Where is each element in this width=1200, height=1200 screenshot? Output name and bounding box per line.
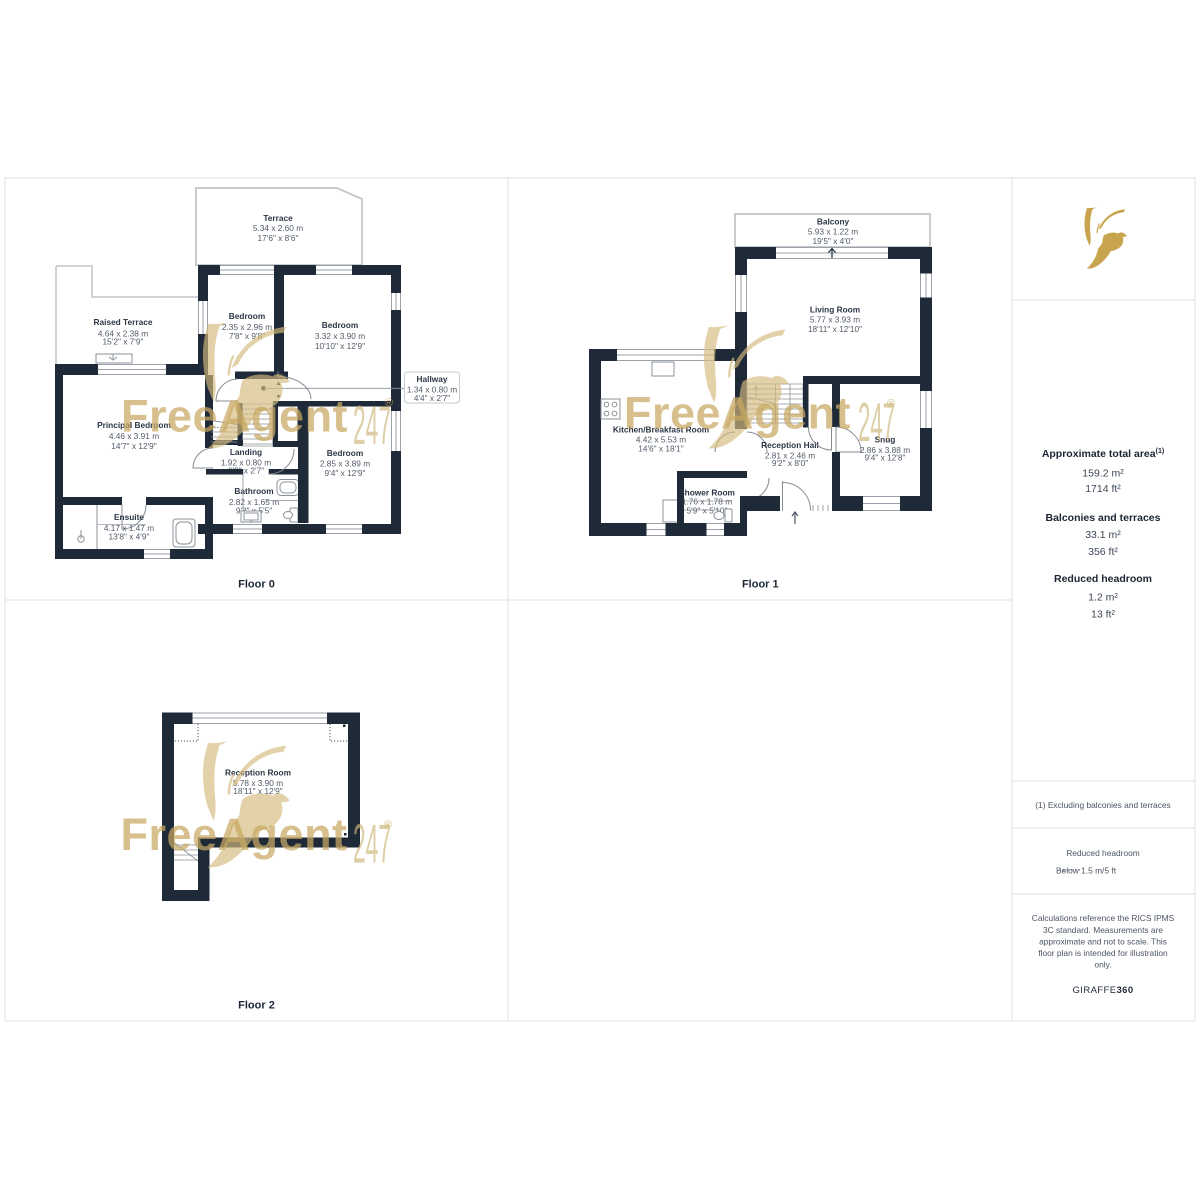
svg-text:Bedroom: Bedroom [229, 311, 265, 321]
svg-text:Hallway: Hallway [417, 374, 448, 384]
svg-text:19'5" x 4'0": 19'5" x 4'0" [813, 236, 854, 246]
svg-text:Approximate total area(1): Approximate total area(1) [1042, 448, 1164, 460]
svg-text:Living Room: Living Room [810, 304, 860, 314]
svg-text:3.32 x 3.90 m: 3.32 x 3.90 m [315, 331, 365, 341]
svg-text:18'11" x 12'10": 18'11" x 12'10" [808, 324, 862, 334]
svg-text:9'4" x 12'8": 9'4" x 12'8" [865, 453, 906, 463]
svg-text:®: ® [384, 819, 392, 831]
svg-text:10'10" x 12'9": 10'10" x 12'9" [315, 341, 365, 351]
svg-text:Bedroom: Bedroom [322, 320, 358, 330]
svg-text:FreeAgent: FreeAgent [121, 809, 348, 860]
svg-text:Ensuite: Ensuite [114, 512, 144, 522]
svg-text:Floor 2: Floor 2 [238, 999, 275, 1011]
svg-text:FreeAgent: FreeAgent [121, 391, 348, 442]
svg-text:Reduced headroom: Reduced headroom [1066, 848, 1140, 858]
svg-text:®: ® [385, 397, 393, 409]
svg-text:15'2" x 7'9": 15'2" x 7'9" [103, 337, 144, 347]
svg-text:5.34 x 2.60 m: 5.34 x 2.60 m [253, 223, 303, 233]
svg-text:Terrace: Terrace [263, 213, 293, 223]
svg-text:5.93 x 1.22 m: 5.93 x 1.22 m [808, 227, 858, 237]
svg-text:Balcony: Balcony [817, 217, 850, 227]
svg-text:Floor 0: Floor 0 [238, 578, 275, 590]
svg-text:33.1 m²: 33.1 m² [1085, 529, 1121, 541]
svg-text:4'4" x 2'7": 4'4" x 2'7" [414, 393, 450, 403]
svg-text:17'6" x 8'6": 17'6" x 8'6" [258, 233, 299, 243]
svg-text:13 ft²: 13 ft² [1091, 609, 1115, 621]
svg-text:Raised Terrace: Raised Terrace [94, 317, 153, 327]
svg-text:Bathroom: Bathroom [234, 486, 273, 496]
svg-text:®: ® [887, 398, 895, 410]
svg-text:Floor 1: Floor 1 [742, 578, 779, 590]
svg-text:only.: only. [1094, 960, 1111, 970]
svg-text:159.2 m²: 159.2 m² [1082, 467, 1124, 479]
svg-text:356 ft²: 356 ft² [1088, 546, 1118, 558]
svg-text:14'7" x 12'9": 14'7" x 12'9" [111, 441, 157, 451]
svg-text:Reception Room: Reception Room [225, 767, 291, 777]
svg-text:13'8" x 4'9": 13'8" x 4'9" [109, 531, 150, 541]
svg-text:Calculations reference the RIC: Calculations reference the RICS IPMS [1032, 913, 1175, 923]
svg-text:9'4" x 12'9": 9'4" x 12'9" [325, 468, 366, 478]
svg-text:Balconies and terraces: Balconies and terraces [1046, 512, 1161, 524]
svg-text:FreeAgent: FreeAgent [624, 388, 851, 439]
svg-text:GIRAFFE360: GIRAFFE360 [1072, 985, 1133, 996]
svg-text:floor plan is intended for ill: floor plan is intended for illustration [1038, 948, 1168, 958]
svg-text:1714 ft²: 1714 ft² [1085, 483, 1121, 495]
svg-text:14'6" x 18'1": 14'6" x 18'1" [638, 444, 684, 454]
svg-text:(1) Excluding balconies and te: (1) Excluding balconies and terraces [1035, 800, 1170, 810]
svg-text:3C standard. Measurements are: 3C standard. Measurements are [1043, 925, 1163, 935]
svg-text:Reduced headroom: Reduced headroom [1054, 573, 1152, 585]
svg-text:Reception Hall: Reception Hall [761, 440, 819, 450]
svg-text:1.2 m²: 1.2 m² [1088, 592, 1118, 604]
svg-text:Below 1.5 m/5 ft: Below 1.5 m/5 ft [1056, 866, 1117, 876]
svg-text:Landing: Landing [230, 447, 262, 457]
svg-text:9'2" x 8'0": 9'2" x 8'0" [772, 458, 808, 468]
svg-text:approximate and not to scale.: approximate and not to scale. This [1039, 937, 1167, 947]
svg-text:2.85 x 3.89 m: 2.85 x 3.89 m [320, 458, 370, 468]
